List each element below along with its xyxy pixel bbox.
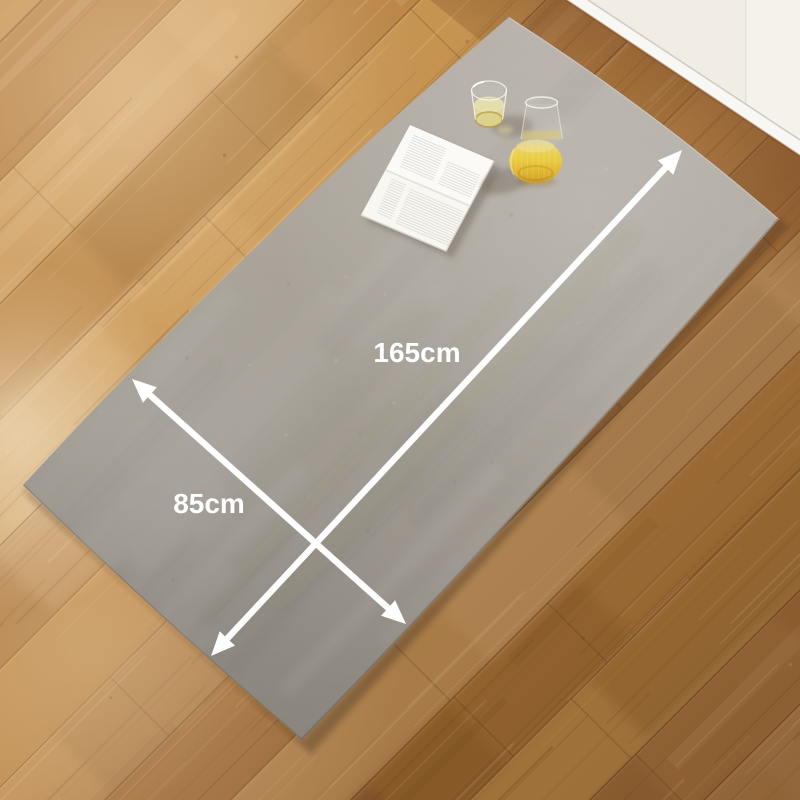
svg-text:165cm: 165cm bbox=[373, 337, 460, 368]
svg-text:85cm: 85cm bbox=[173, 488, 245, 519]
